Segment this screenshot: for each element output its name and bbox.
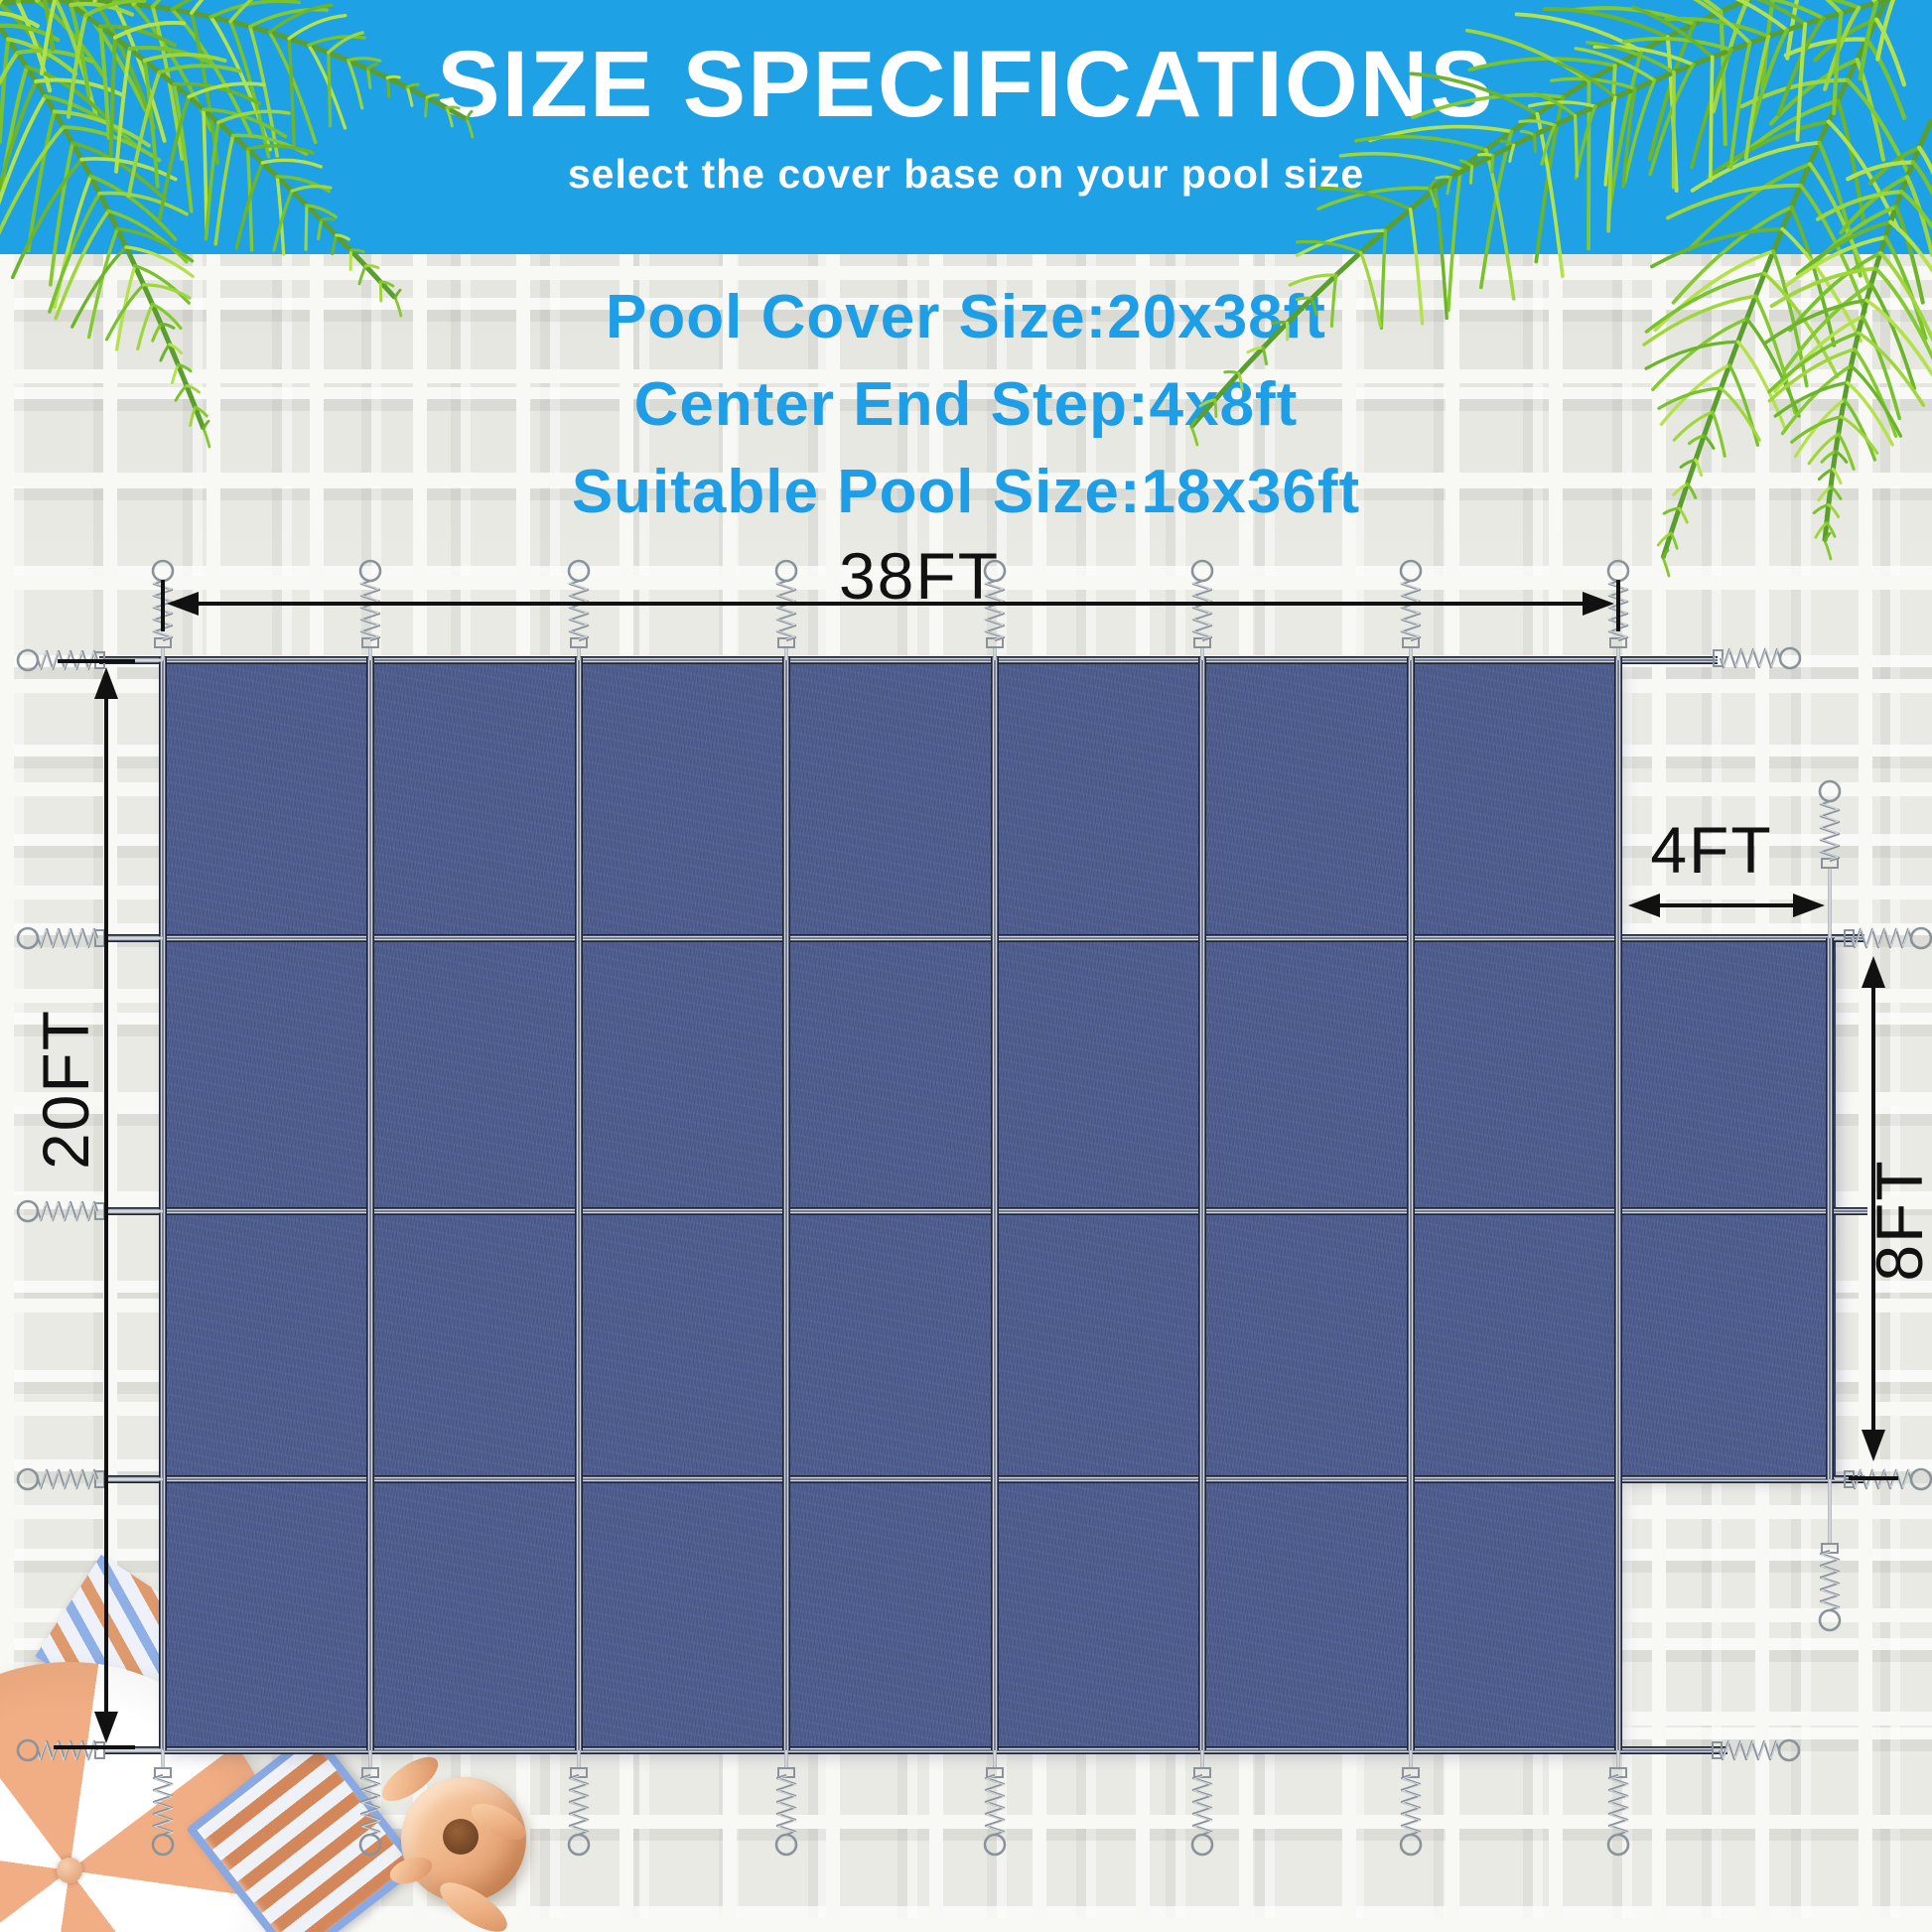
dimension-label-step-height: 8FT [1862, 1159, 1932, 1281]
spec-line-cover-size: Pool Cover Size:20x38ft [0, 274, 1932, 361]
spec-line-center-end-step: Center End Step:4x8ft [0, 361, 1932, 449]
page-title: SIZE SPECIFICATIONS [0, 38, 1932, 132]
dimension-label-cover-width: 38FT [839, 538, 1000, 614]
donut-float-icon [377, 1757, 566, 1932]
dimension-label-step-width: 4FT [1650, 812, 1772, 888]
pool-cover-main-panel [163, 660, 1618, 1750]
dimension-label-cover-height: 20FT [28, 1009, 103, 1170]
size-specification-infographic: SIZE SPECIFICATIONS select the cover bas… [0, 0, 1932, 1932]
pool-cover-center-end-step-panel [1618, 938, 1836, 1479]
header-banner: SIZE SPECIFICATIONS select the cover bas… [0, 0, 1932, 254]
spec-text-block: Pool Cover Size:20x38ft Center End Step:… [0, 274, 1932, 536]
spec-line-suitable-pool-size: Suitable Pool Size:18x36ft [0, 449, 1932, 536]
float-hole [443, 1819, 479, 1855]
page-subtitle: select the cover base on your pool size [0, 152, 1932, 196]
